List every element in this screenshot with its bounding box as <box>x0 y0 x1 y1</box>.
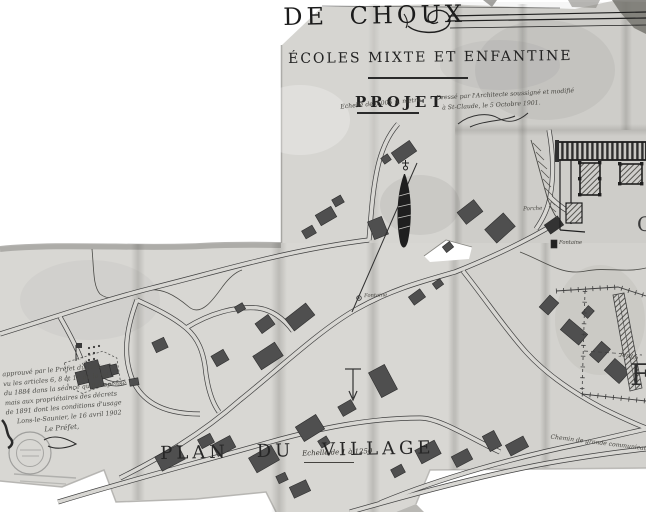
approval-note: approuvé par le Préfet du Jura vu les ar… <box>2 359 129 437</box>
label-fontaine-school: Fontaine <box>559 240 582 246</box>
project-underline <box>357 112 419 114</box>
scanned-plan-photo: DE CHOUX ÉCOLES MIXTE ET ENFANTINE PROJE… <box>0 0 646 512</box>
plan-drawing <box>0 0 646 512</box>
label-fontaine-village: Fontaine <box>364 292 387 299</box>
edge-letter-c: C <box>637 212 646 236</box>
subtitle-underline <box>368 77 468 79</box>
fountain-school-mark <box>551 240 557 248</box>
edge-letter-f: F <box>630 358 646 393</box>
commune-title: DE CHOUX <box>283 0 466 31</box>
label-porche: Porche <box>523 205 543 212</box>
schools-subtitle: ÉCOLES MIXTE ET ENFANTINE <box>288 48 573 67</box>
plan-scale-underline <box>304 462 354 463</box>
